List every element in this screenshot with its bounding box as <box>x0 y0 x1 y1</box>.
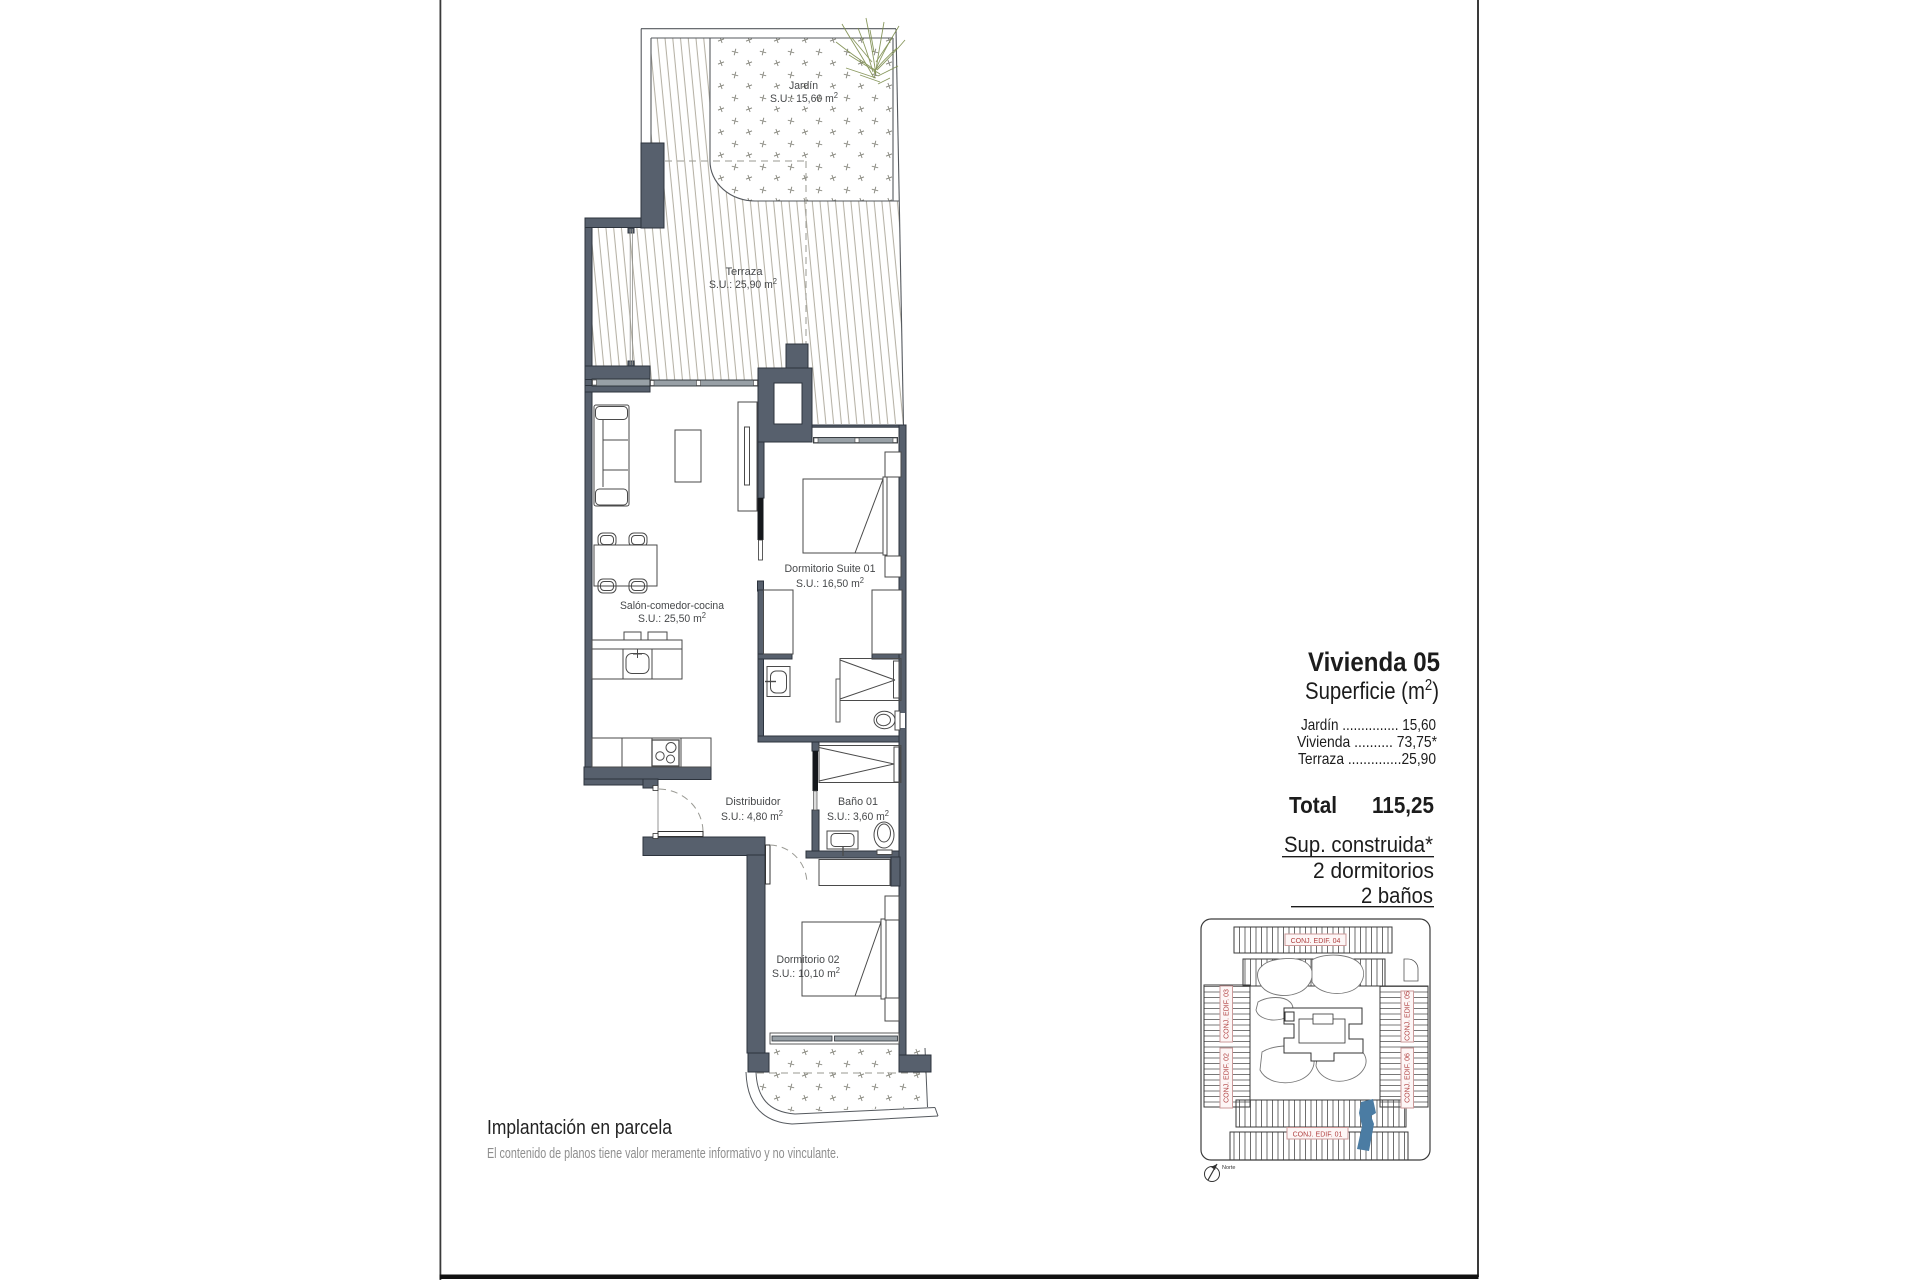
svg-text:CONJ. EDIF. 06: CONJ. EDIF. 06 <box>1405 1053 1412 1103</box>
svg-text:Jardín: Jardín <box>789 80 818 92</box>
svg-text:S.U.: 25,90 m2: S.U.: 25,90 m2 <box>709 277 778 291</box>
svg-text:Terraza: Terraza <box>726 266 764 278</box>
svg-text:S.U.: 4,80 m2: S.U.: 4,80 m2 <box>721 809 784 823</box>
svg-text:Vivienda .......... 73,75*: Vivienda .......... 73,75* <box>1297 734 1437 751</box>
svg-text:S.U.: 15,60 m2: S.U.: 15,60 m2 <box>770 91 839 105</box>
svg-text:S.U.: 25,50 m2: S.U.: 25,50 m2 <box>638 611 707 625</box>
svg-text:115,25: 115,25 <box>1372 792 1434 818</box>
svg-text:Norte: Norte <box>1222 1165 1235 1171</box>
svg-text:S.U.: 10,10 m2: S.U.: 10,10 m2 <box>772 966 841 980</box>
svg-text:CONJ. EDIF. 04: CONJ. EDIF. 04 <box>1291 938 1341 945</box>
svg-text:Dormitorio Suite 01: Dormitorio Suite 01 <box>785 563 876 575</box>
svg-text:S.U.: 3,60 m2: S.U.: 3,60 m2 <box>827 809 890 823</box>
svg-text:2 baños: 2 baños <box>1361 883 1433 908</box>
svg-text:El contenido de planos tiene v: El contenido de planos tiene valor meram… <box>487 1146 839 1162</box>
svg-text:Total: Total <box>1289 792 1337 818</box>
svg-text:CONJ. EDIF. 03: CONJ. EDIF. 03 <box>1224 989 1231 1039</box>
svg-text:Dormitorio 02: Dormitorio 02 <box>777 954 840 966</box>
svg-text:CONJ. EDIF. 05: CONJ. EDIF. 05 <box>1405 991 1412 1041</box>
svg-text:Salón-comedor-cocina: Salón-comedor-cocina <box>620 600 725 612</box>
svg-text:CONJ. EDIF. 02: CONJ. EDIF. 02 <box>1224 1053 1231 1103</box>
svg-text:2 dormitorios: 2 dormitorios <box>1313 858 1434 883</box>
svg-text:Implantación en parcela: Implantación en parcela <box>487 1117 673 1139</box>
svg-text:Sup. construida*: Sup. construida* <box>1284 832 1433 857</box>
svg-text:Jardín ............... 15,60: Jardín ............... 15,60 <box>1301 717 1436 734</box>
svg-text:S.U.: 16,50 m2: S.U.: 16,50 m2 <box>796 576 865 590</box>
svg-text:Baño 01: Baño 01 <box>838 796 878 808</box>
svg-text:Distribuidor: Distribuidor <box>726 796 781 808</box>
svg-text:Terraza ..............25,90: Terraza ..............25,90 <box>1298 751 1436 768</box>
svg-text:Vivienda 05: Vivienda 05 <box>1308 647 1440 677</box>
svg-text:Superficie (m2): Superficie (m2) <box>1305 677 1439 705</box>
svg-text:CONJ. EDIF. 01: CONJ. EDIF. 01 <box>1293 1132 1343 1139</box>
